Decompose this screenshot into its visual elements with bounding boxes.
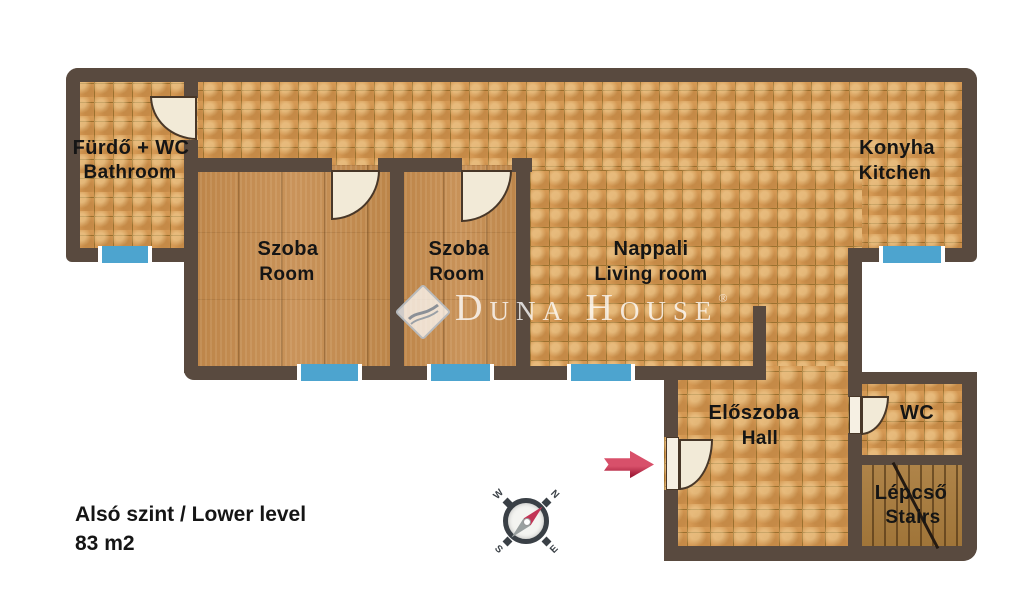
door-wc-leaf <box>849 396 861 434</box>
level-title: Alsó szint / Lower level <box>75 503 306 527</box>
label-kitchen-hu: Konyha <box>859 137 935 160</box>
window-room1 <box>297 364 362 381</box>
label-room1-hu: Szoba <box>258 238 319 261</box>
wall-rooms-divider <box>390 158 404 373</box>
label-kitchen-en: Kitchen <box>859 163 931 185</box>
window-room2 <box>427 364 494 381</box>
watermark-brand-text: Duna House <box>455 287 718 329</box>
window-bathroom <box>98 246 152 263</box>
wall-right-upper <box>962 68 977 262</box>
label-wc: WC <box>900 402 934 425</box>
wall-hall-left-a <box>664 366 678 437</box>
window-living <box>567 364 635 381</box>
wall-room1-top-a <box>198 158 332 172</box>
level-area: 83 m2 <box>75 532 135 556</box>
label-bathroom-hu: Fürdő + WC <box>73 137 190 160</box>
window-glass <box>431 364 490 381</box>
wall-stairs-left <box>848 455 862 546</box>
label-hall-hu: Előszoba <box>709 402 800 425</box>
compass-south: S <box>492 543 504 555</box>
window-glass <box>102 246 148 263</box>
label-stairs-hu: Lépcső <box>875 482 947 505</box>
wall-room1-left <box>184 248 198 373</box>
wall-wc-top <box>848 372 977 384</box>
door-entry-leaf <box>666 437 679 490</box>
wall-bottom <box>664 546 977 561</box>
floor-plan: Fürdő + WC Bathroom Szoba Room Szoba Roo… <box>0 0 1024 614</box>
label-bathroom-en: Bathroom <box>84 162 177 184</box>
wall-room2-right <box>516 158 530 373</box>
label-living-hu: Nappali <box>613 238 688 261</box>
window-glass <box>571 364 631 381</box>
label-room2-hu: Szoba <box>429 238 490 261</box>
watermark-swoosh-icon <box>405 294 441 330</box>
wall-stairs-top <box>848 455 962 465</box>
wall-right-lower <box>962 372 977 561</box>
registered-mark: ® <box>718 291 727 305</box>
label-room2-en: Room <box>429 264 484 286</box>
window-kitchen <box>879 246 945 263</box>
label-stairs-en: Stairs <box>885 507 940 529</box>
compass-icon: W N S E <box>494 489 560 555</box>
wall-top <box>66 68 977 82</box>
compass-east: E <box>548 543 560 555</box>
wall-notch-left <box>848 248 862 384</box>
label-room1-en: Room <box>259 264 314 286</box>
wall-left <box>66 68 80 262</box>
entry-arrow-icon <box>604 449 654 480</box>
wall-room2-top-a <box>404 158 462 172</box>
wall-living-stub <box>753 306 766 370</box>
label-hall-en: Hall <box>742 428 778 450</box>
compass-hub <box>523 518 531 526</box>
label-living-en: Living room <box>594 264 707 286</box>
wall-wc-left-b <box>848 433 862 455</box>
window-glass <box>883 246 941 263</box>
compass-north: N <box>548 488 561 501</box>
watermark-brand: Duna House® <box>455 286 728 330</box>
window-glass <box>301 364 358 381</box>
